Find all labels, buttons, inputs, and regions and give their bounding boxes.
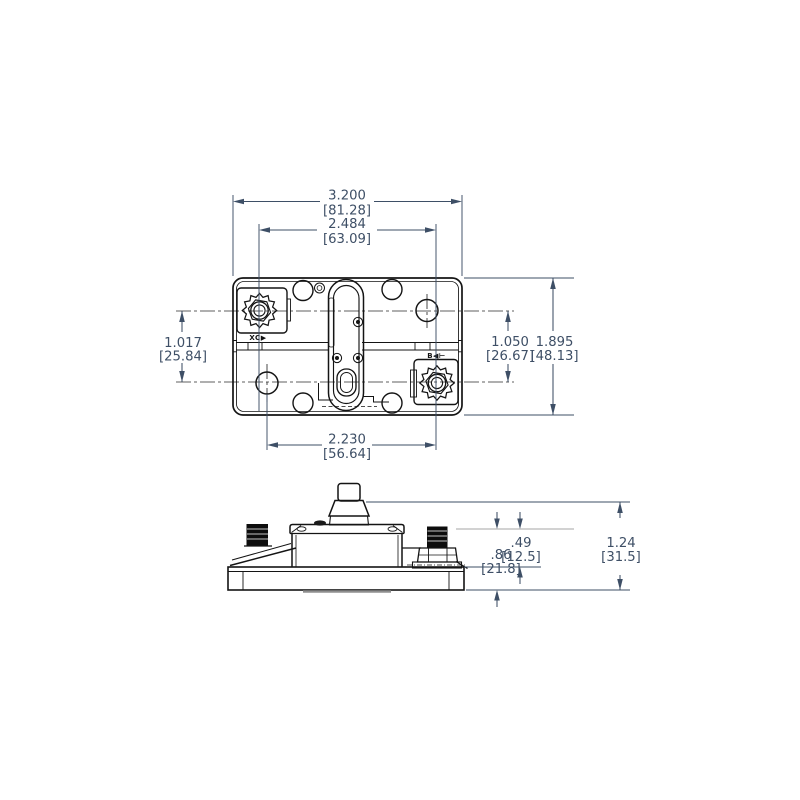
- top-view: XC▶ B◀⊢: [159, 189, 579, 463]
- rivets: [332, 317, 362, 362]
- housing-bosses: [293, 280, 402, 414]
- svg-text:[63.09]: [63.09]: [323, 232, 371, 247]
- dim-overall-height-side: 1.24 [31.5]: [601, 502, 641, 590]
- reset-button: [329, 484, 369, 526]
- right-wing: [402, 548, 468, 569]
- svg-text:[56.64]: [56.64]: [323, 447, 371, 462]
- bat-terminal: B◀⊢: [411, 352, 459, 405]
- breaker-dimension-drawing: XC▶ B◀⊢: [0, 0, 800, 800]
- center-body: [290, 520, 404, 567]
- svg-text:.49: .49: [511, 536, 532, 551]
- svg-text:1.895: 1.895: [536, 335, 574, 350]
- base-flange: [228, 567, 464, 592]
- aux-terminal-marking: XC▶: [249, 334, 266, 342]
- svg-text:[31.5]: [31.5]: [601, 550, 641, 565]
- dim-left-height: 1.017 [25.84]: [159, 311, 207, 382]
- svg-text:3.200: 3.200: [328, 189, 366, 204]
- left-stud: [244, 524, 272, 546]
- aux-terminal: XC▶: [237, 288, 291, 342]
- svg-text:[48.13]: [48.13]: [530, 349, 578, 364]
- svg-text:[25.84]: [25.84]: [159, 350, 207, 365]
- reset-lever-slot: [319, 280, 390, 411]
- drawing-canvas: XC▶ B◀⊢: [0, 0, 800, 800]
- svg-text:2.230: 2.230: [328, 433, 366, 448]
- svg-text:1.24: 1.24: [606, 536, 635, 551]
- dim-right-height: 1.050 [26.67]: [486, 311, 534, 382]
- svg-text:.86: .86: [491, 548, 512, 563]
- right-stud: [407, 527, 466, 569]
- bat-terminal-marking: B◀⊢: [427, 352, 446, 360]
- dim-bottom-spacing: 2.230 [56.64]: [267, 394, 436, 462]
- svg-text:2.484: 2.484: [328, 217, 366, 232]
- gasket-detail: [314, 520, 326, 525]
- svg-text:1.050: 1.050: [491, 335, 529, 350]
- left-wing: [230, 544, 296, 566]
- svg-text:[21.8]: [21.8]: [481, 562, 521, 577]
- side-view: .49 [12.5] .86 [21.8] 1.24 [31.5]: [228, 484, 641, 608]
- centerlines: [176, 294, 514, 402]
- svg-text:[26.67]: [26.67]: [486, 349, 534, 364]
